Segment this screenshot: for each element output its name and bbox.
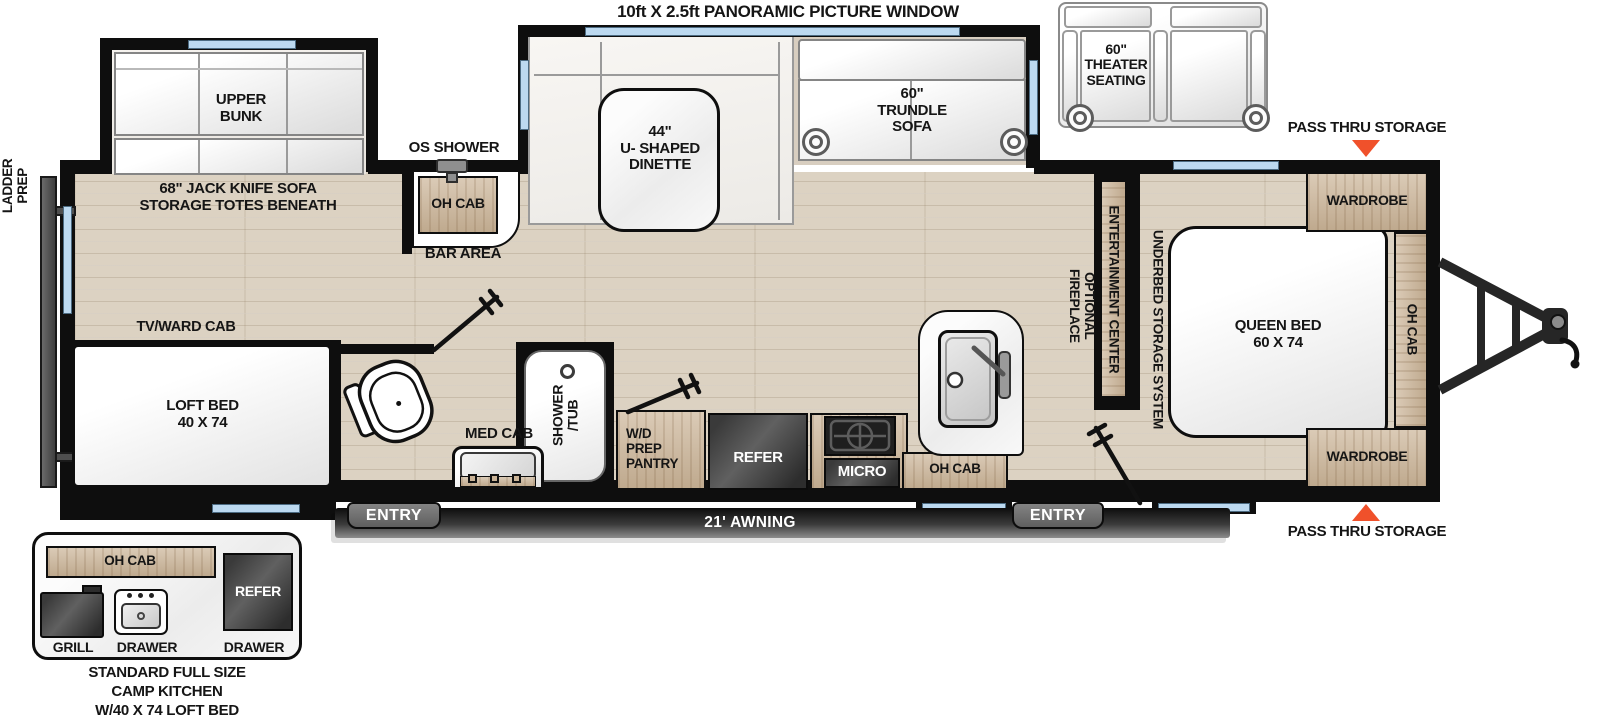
entertainment-center-label: ENTERTAINMENT CENTER bbox=[1106, 179, 1121, 399]
camp-sink-knob-2 bbox=[138, 593, 143, 598]
bar-wall-left bbox=[402, 170, 412, 254]
bedroom-oh-cab-label: OH CAB bbox=[1404, 259, 1419, 399]
awning-label: 21' AWNING bbox=[660, 514, 840, 531]
window-dinette-top bbox=[585, 27, 960, 36]
os-shower-head-icon bbox=[436, 159, 468, 173]
pass-thru-top-label: PASS THRU STORAGE bbox=[1262, 120, 1472, 137]
entry-bedroom-label: ENTRY bbox=[1030, 507, 1086, 524]
wall-bath-top bbox=[338, 344, 434, 354]
window-bunk-top bbox=[188, 40, 296, 49]
camp-refer-label: REFER bbox=[224, 584, 292, 599]
ladder-prep-label: LADDER PREP bbox=[1, 141, 31, 231]
wardrobe-rear-label: WARDROBE bbox=[1312, 449, 1422, 464]
theater-seating-label: 60" THEATER SEATING bbox=[1068, 42, 1164, 88]
refer-label: REFER bbox=[722, 450, 794, 467]
trundle-armrest-right bbox=[1000, 128, 1028, 156]
window-left-wall bbox=[63, 206, 72, 314]
bar-oh-cab-label: OH CAB bbox=[418, 196, 498, 211]
camp-oh-cab-label: OH CAB bbox=[60, 554, 200, 569]
camp-sink-drain bbox=[137, 612, 145, 620]
theater-back-left bbox=[1064, 6, 1152, 28]
kitchen-oh-cab-label: OH CAB bbox=[920, 462, 990, 477]
tv-ward-cab-label: TV/WARD CAB bbox=[108, 320, 264, 336]
bar-area-label: BAR AREA bbox=[404, 246, 522, 263]
window-bedroom-top bbox=[1173, 161, 1279, 170]
kitchen-sink-inner bbox=[945, 337, 991, 421]
camp-sink-knob-3 bbox=[149, 593, 154, 598]
os-shower-label: OS SHOWER bbox=[398, 140, 510, 157]
sofa-seat-divider-1 bbox=[198, 140, 200, 173]
wardrobe-front-label: WARDROBE bbox=[1312, 193, 1422, 208]
dinette-label: 44" U- SHAPED DINETTE bbox=[604, 124, 716, 174]
bunk-slide-wall-right bbox=[366, 38, 378, 172]
os-shower-spout-icon bbox=[446, 172, 458, 183]
ladder-prep-bar bbox=[40, 176, 57, 488]
micro-label: MICRO bbox=[824, 464, 900, 481]
pass-thru-arrow-top bbox=[1352, 140, 1380, 157]
hitch-frame bbox=[1440, 262, 1580, 390]
loft-bed-label: LOFT BED 40 X 74 bbox=[130, 398, 275, 431]
pass-thru-bottom-label: PASS THRU STORAGE bbox=[1262, 524, 1472, 541]
camp-grill-burner bbox=[82, 585, 102, 594]
wall-bath-left bbox=[331, 340, 341, 488]
dinette-bench-line-top bbox=[534, 74, 780, 76]
jack-knife-sofa-seat bbox=[114, 138, 364, 175]
trundle-armrest-left bbox=[802, 128, 830, 156]
entry-door-bedroom: ENTRY bbox=[1012, 502, 1104, 529]
vanity-knob-3 bbox=[512, 474, 521, 483]
vanity-knob-1 bbox=[468, 474, 477, 483]
camp-sink-knob-1 bbox=[127, 593, 132, 598]
camp-grill-box bbox=[40, 592, 104, 638]
queen-bed-label: QUEEN BED 60 X 74 bbox=[1198, 318, 1358, 351]
window-loft-bottom bbox=[212, 504, 300, 513]
vanity-knob-2 bbox=[490, 474, 499, 483]
jack-knife-sofa-label: 68" JACK KNIFE SOFA STORAGE TOTES BENEAT… bbox=[106, 181, 370, 214]
upper-bunk-label: UPPER BUNK bbox=[186, 92, 296, 125]
optional-fireplace-label: OPTIONAL FIREPLACE bbox=[1066, 234, 1096, 378]
theater-cupholder-left bbox=[1066, 104, 1094, 132]
wd-prep-pantry-label: W/D PREP PANTRY bbox=[626, 427, 706, 472]
camp-grill-label: GRILL bbox=[38, 640, 108, 655]
underbed-storage-label: UNDERBED STORAGE SYSTEM bbox=[1150, 199, 1165, 459]
bunk-pillow-line bbox=[116, 68, 362, 70]
trundle-sofa-label: 60" TRUNDLE SOFA bbox=[858, 86, 966, 136]
theater-seat-right bbox=[1170, 30, 1248, 122]
window-dinette-left bbox=[520, 60, 529, 130]
shower-tub-label: SHOWER /TUB bbox=[551, 371, 582, 459]
camp-drawer-left-label: DRAWER bbox=[106, 640, 188, 655]
window-dinette-right bbox=[1029, 60, 1038, 135]
cooktop bbox=[824, 416, 896, 456]
rv-floorplan: ENTRY ENTRY 10ft X 2.5ft PANORAMIC PICTU… bbox=[0, 0, 1600, 727]
dinette-bench-line-right bbox=[778, 42, 780, 220]
pass-thru-arrow-bottom bbox=[1352, 504, 1380, 521]
sofa-seat-divider-2 bbox=[286, 140, 288, 173]
panoramic-window-label: 10ft X 2.5ft PANORAMIC PICTURE WINDOW bbox=[538, 3, 1038, 22]
entry-door-bath: ENTRY bbox=[347, 502, 441, 529]
camp-drawer-right-label: DRAWER bbox=[212, 640, 296, 655]
camp-kitchen-caption: STANDARD FULL SIZE CAMP KITCHEN W/40 X 7… bbox=[58, 664, 276, 720]
bunk-slide-wall-left bbox=[100, 38, 112, 172]
med-cab-label: MED CAB bbox=[448, 426, 550, 443]
theater-back-right bbox=[1170, 6, 1262, 28]
entry-bath-label: ENTRY bbox=[366, 507, 422, 524]
trundle-sofa-back bbox=[798, 39, 1026, 81]
